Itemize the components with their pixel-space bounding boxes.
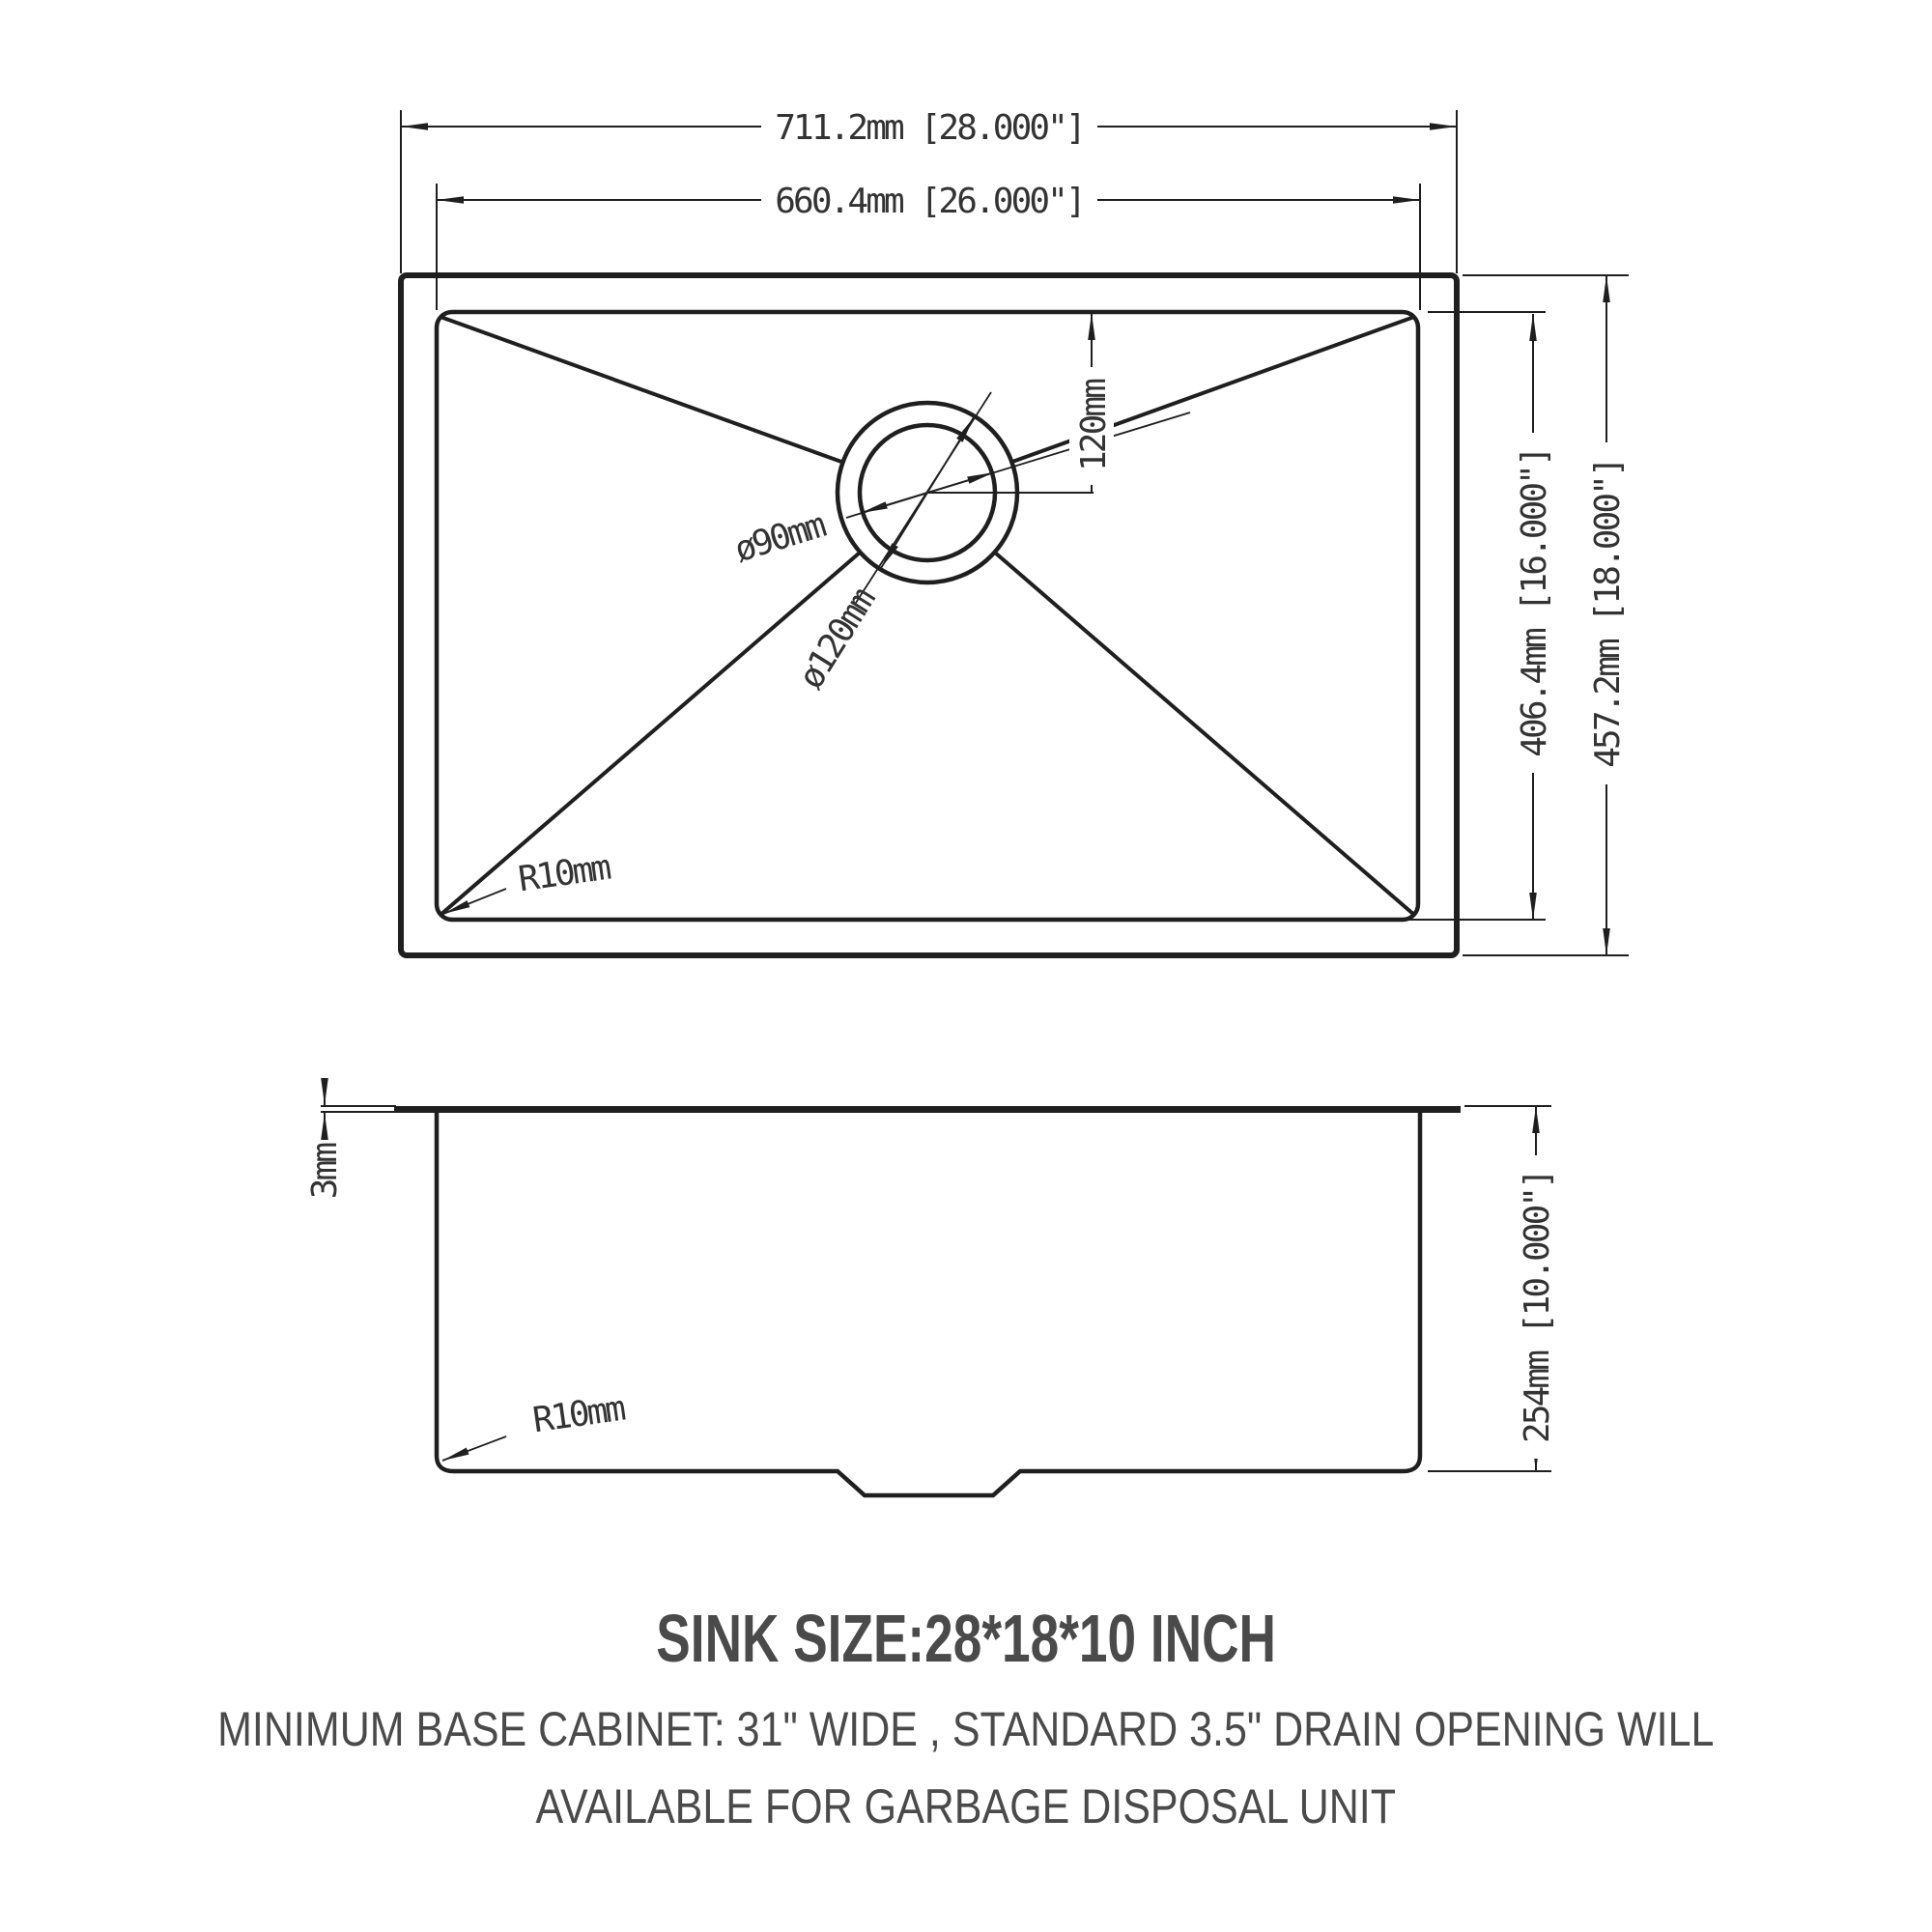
label-bowl-depth: 254mm [10.000"]: [1518, 1171, 1557, 1443]
top-view-outer-rim-rect: [401, 275, 1457, 955]
top-view: 711.2mm [28.000"] 660.4mm [26.000"] 406.…: [401, 104, 1632, 955]
cabinet-note-line2-text: AVAILABLE FOR GARBAGE DISPOSAL UNIT: [536, 1782, 1397, 1831]
label-outer-width: 711.2mm [28.000"]: [775, 108, 1084, 148]
side-view-bowl-profile: [437, 1113, 1420, 1495]
top-view-labels: 711.2mm [28.000"] 660.4mm [26.000"] 406.…: [516, 108, 1628, 899]
leader-corner-radius-top-view: [443, 889, 506, 914]
label-corner-radius-top: R10mm: [516, 848, 612, 900]
label-corner-radius-side: R10mm: [530, 1389, 627, 1441]
cabinet-note-line1: MINIMUM BASE CABINET: 31" WIDE , STANDAR…: [0, 1705, 1932, 1753]
sink-size-title-text: SINK SIZE:28*18*10 INCH: [656, 1605, 1276, 1672]
label-outer-depth: 457.2mm [18.000"]: [1588, 459, 1628, 768]
label-inner-depth: 406.4mm [16.000"]: [1515, 448, 1554, 757]
label-drain-inner-diameter: ø90mm: [730, 505, 830, 570]
sink-size-title: SINK SIZE:28*18*10 INCH: [0, 1605, 1932, 1672]
side-view-labels: 3mm 254mm [10.000"] R10mm: [305, 1144, 1557, 1443]
crease-diagonal-bottom-right: [995, 553, 1414, 915]
side-view-dimension-lines: [325, 1080, 1536, 1471]
label-drain-offset: 120mm: [1074, 380, 1114, 471]
label-inner-width: 660.4mm [26.000"]: [775, 182, 1084, 221]
crease-diagonal-top-left: [440, 317, 841, 462]
side-view-extension-lines: [321, 1106, 1551, 1471]
crease-diagonal-bottom-left: [440, 553, 860, 915]
top-view-extension-lines: [401, 110, 1629, 955]
side-view-rim-bar: [394, 1106, 1461, 1113]
side-view: 3mm 254mm [10.000"] R10mm: [305, 1080, 1561, 1495]
leader-corner-radius-side-view: [442, 1436, 506, 1461]
cabinet-note-line2: AVAILABLE FOR GARBAGE DISPOSAL UNIT: [0, 1782, 1932, 1831]
sink-spec-sheet: 711.2mm [28.000"] 660.4mm [26.000"] 406.…: [0, 0, 1932, 1932]
cabinet-note-line1-text: MINIMUM BASE CABINET: 31" WIDE , STANDAR…: [217, 1705, 1714, 1753]
label-rim-thickness: 3mm: [305, 1144, 345, 1200]
